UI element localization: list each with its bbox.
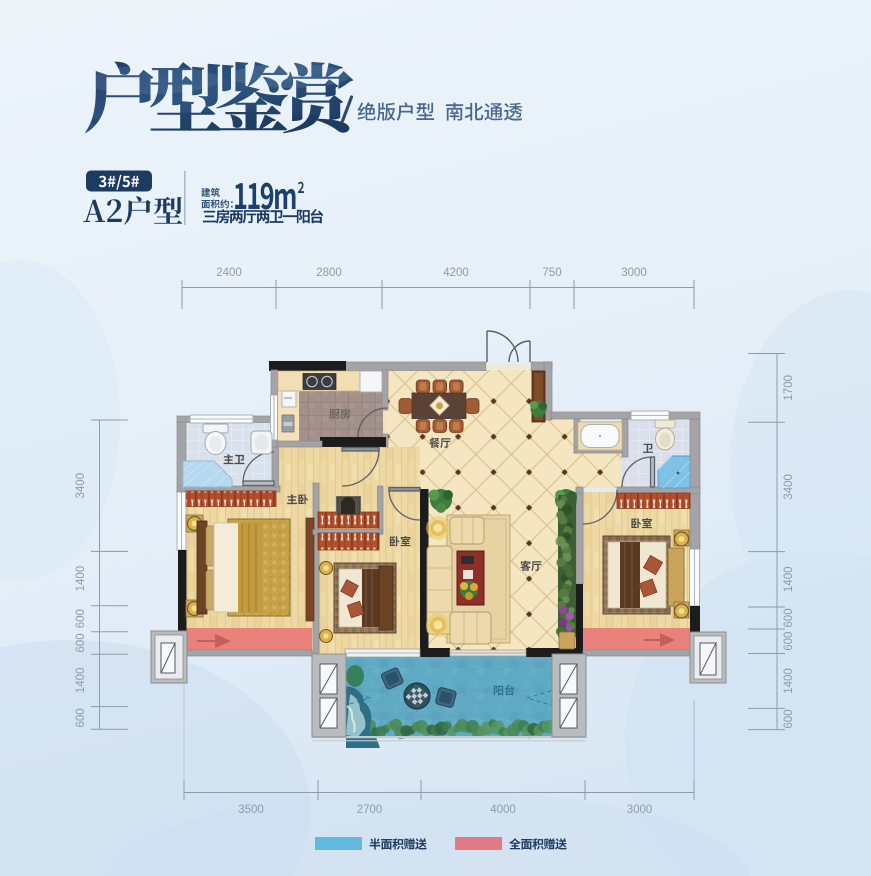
svg-text:1400: 1400 — [75, 566, 87, 592]
svg-text:3400: 3400 — [783, 474, 795, 500]
svg-text:4200: 4200 — [443, 267, 469, 279]
svg-text:600: 600 — [75, 609, 87, 628]
svg-text:600: 600 — [783, 632, 795, 651]
svg-text:600: 600 — [783, 709, 795, 728]
svg-text:600: 600 — [75, 633, 87, 652]
svg-text:1400: 1400 — [783, 567, 795, 593]
svg-text:3000: 3000 — [621, 267, 647, 279]
svg-text:2400: 2400 — [216, 267, 242, 279]
svg-text:600: 600 — [783, 608, 795, 627]
svg-text:1400: 1400 — [783, 668, 795, 694]
svg-text:1700: 1700 — [783, 375, 795, 401]
svg-text:2800: 2800 — [316, 267, 342, 279]
svg-text:600: 600 — [75, 708, 87, 727]
svg-text:3500: 3500 — [238, 804, 264, 816]
svg-text:3400: 3400 — [75, 473, 87, 499]
svg-text:750: 750 — [542, 267, 561, 279]
svg-text:1400: 1400 — [75, 668, 87, 694]
svg-text:3000: 3000 — [627, 804, 653, 816]
svg-text:2700: 2700 — [357, 804, 383, 816]
svg-text:4000: 4000 — [490, 804, 516, 816]
